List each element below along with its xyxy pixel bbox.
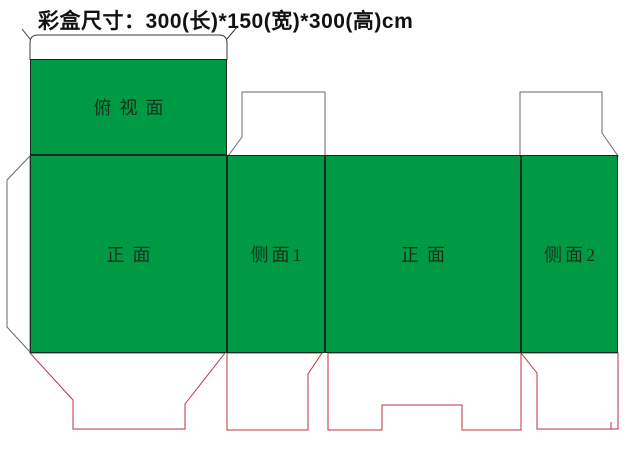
panel-side-1-label: 侧面1 [248,241,305,267]
panel-side-2: 侧面2 [521,155,618,353]
dust-flap-side2 [520,92,618,156]
panel-front-2: 正面 [325,155,521,353]
panel-side-2-label: 侧面2 [541,241,598,267]
panel-side-1: 侧面1 [227,155,325,353]
tuck-flap-left-tick [22,29,30,39]
panel-front-2-label: 正面 [393,241,453,267]
panel-top-view: 俯视面 [30,59,227,155]
bottom-flap-front1 [30,353,225,429]
glue-flap [7,156,30,352]
tuck-flap [30,35,227,60]
bottom-flap-side1 [227,353,322,430]
bottom-flap-front2 [328,353,521,430]
panel-front-1: 正面 [30,155,227,353]
box-dieline-diagram: 彩盒尺寸：300(长)*150(宽)*300(高)cm 俯视面 正面 侧面1 正… [0,0,630,467]
panel-top-view-label: 俯视面 [86,94,172,120]
tuck-flap-right-tick [227,27,237,39]
dust-flap-side1 [228,92,325,156]
bottom-flap-side2 [521,353,618,429]
panel-front-1-label: 正面 [99,241,159,267]
